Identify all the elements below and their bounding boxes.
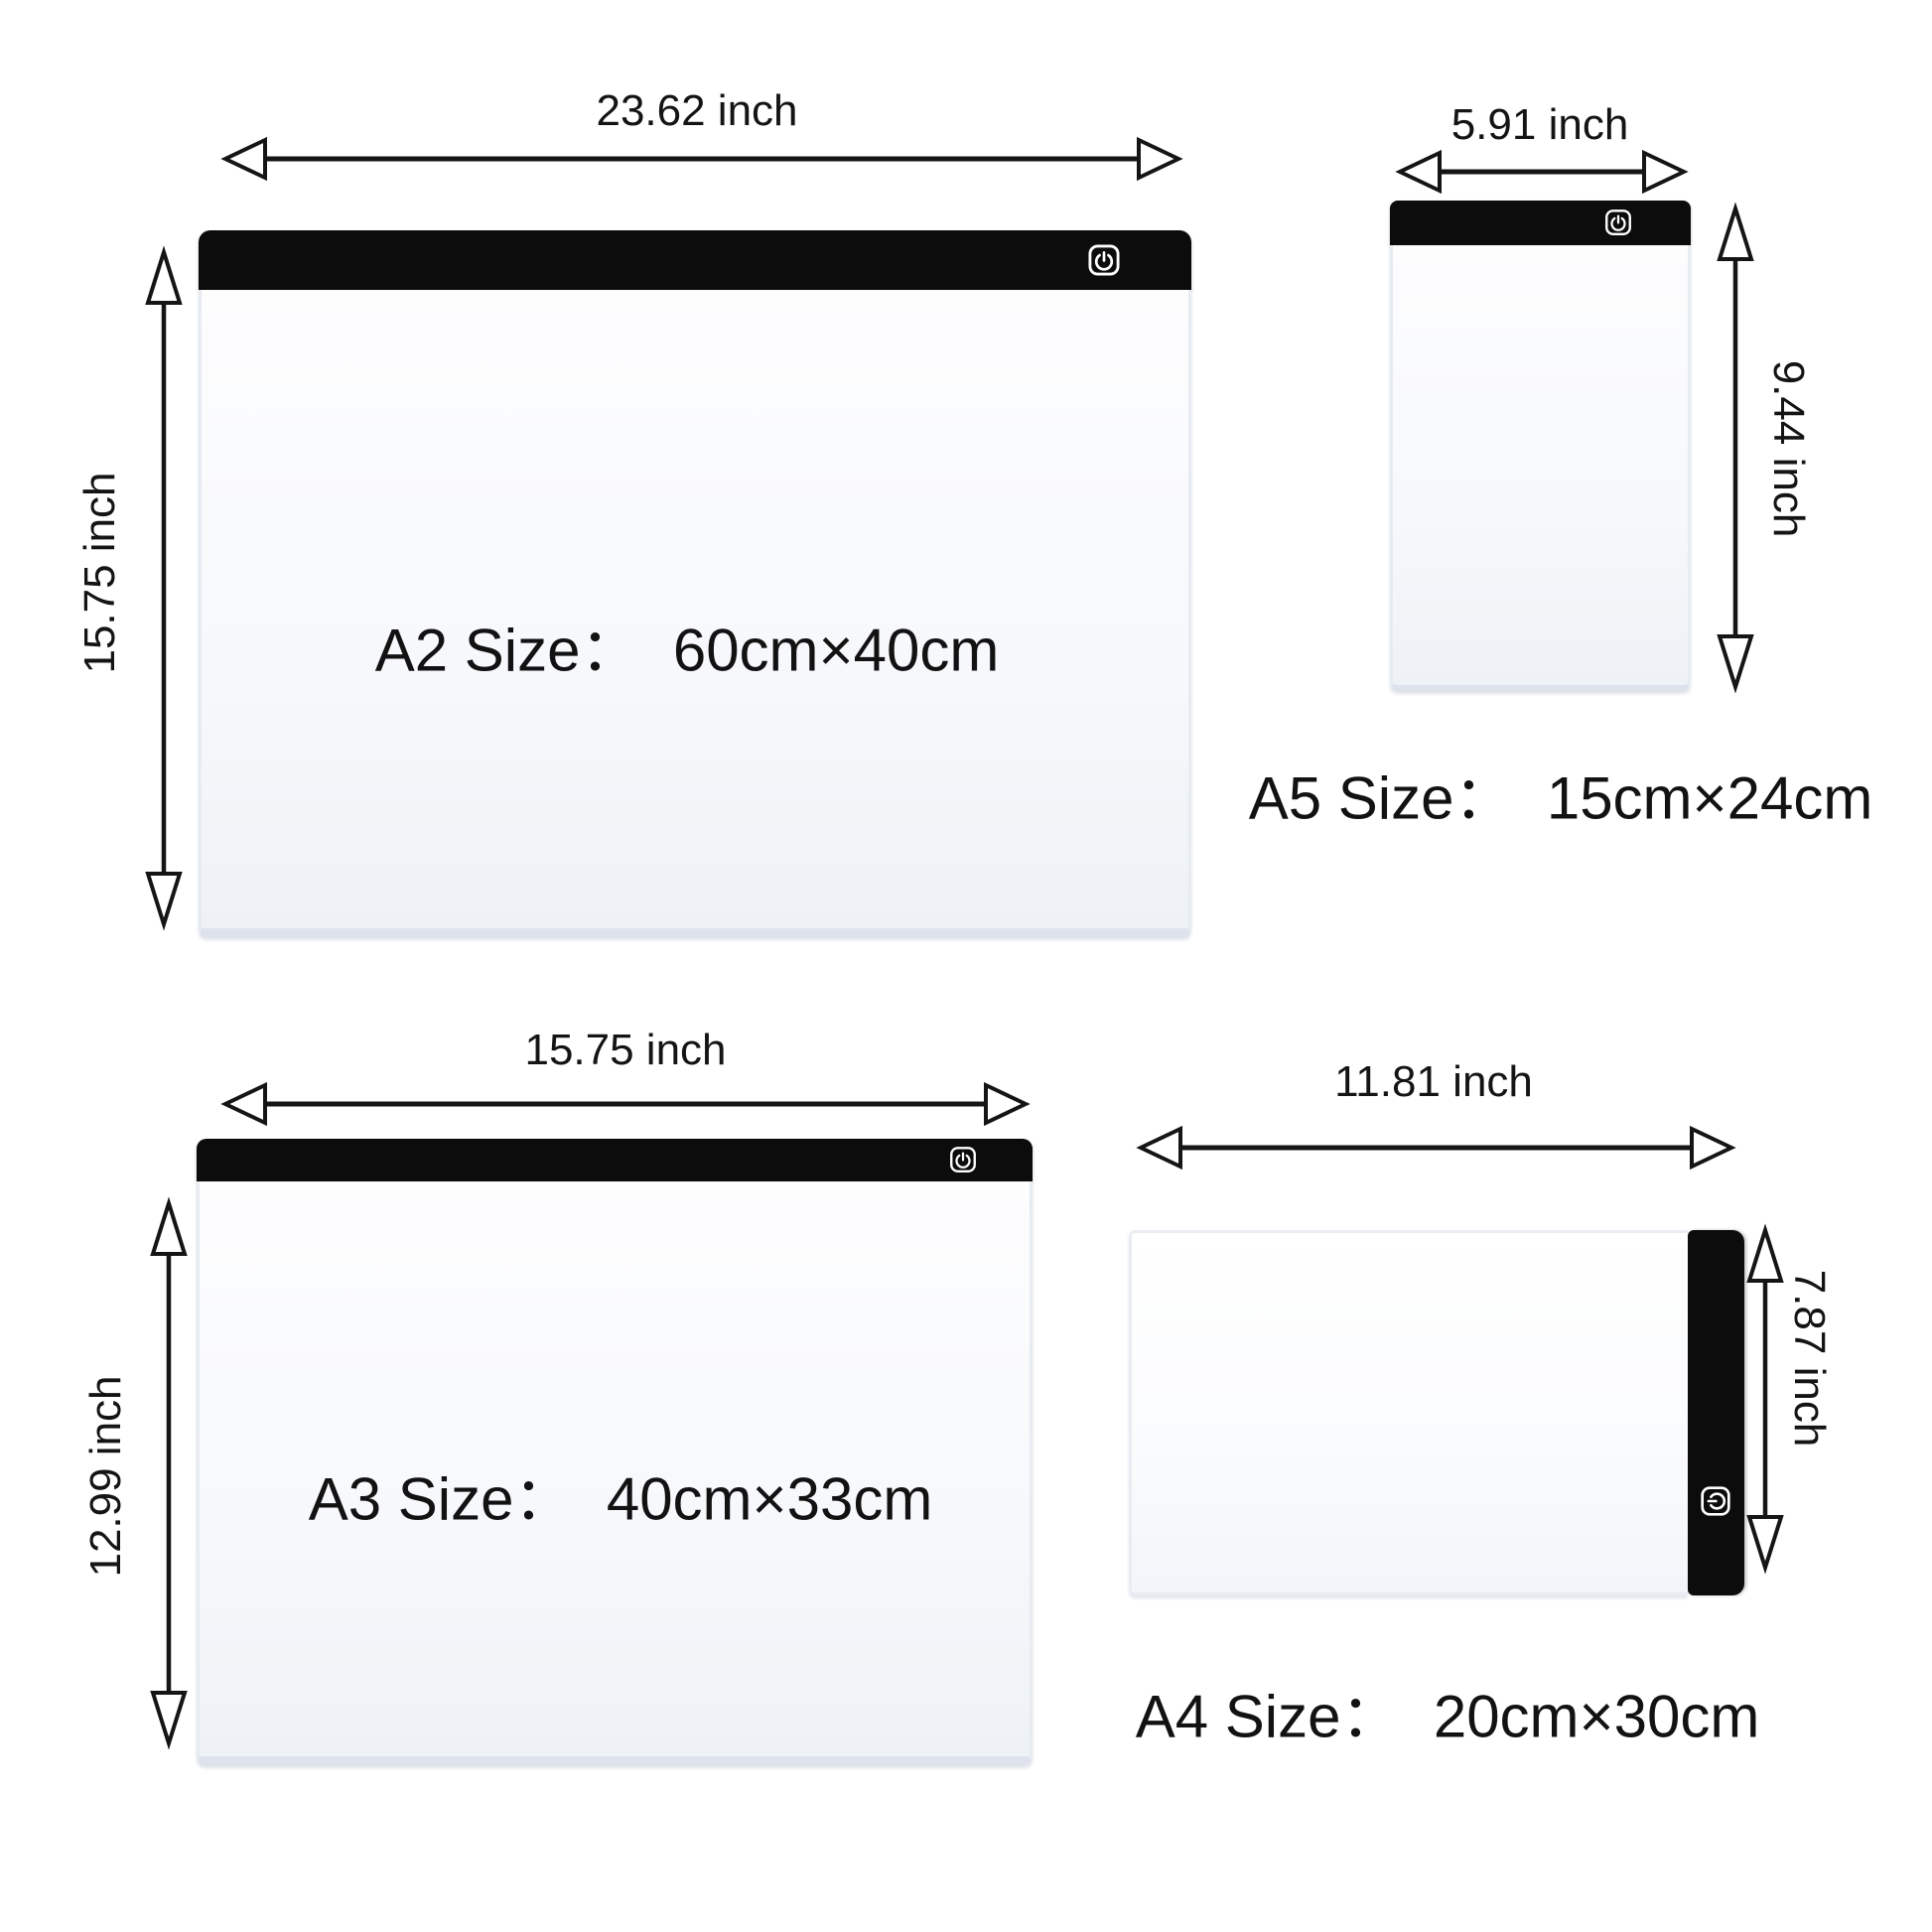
- a4-height-dimension-arrow: [1741, 1226, 1789, 1572]
- a2-width-dimension-label: 23.62 inch: [596, 86, 797, 136]
- a2-top-bar: [199, 230, 1191, 290]
- a3-size-label: A3 Size： 40cm×33cm: [309, 1451, 933, 1538]
- a3-width-dimension-label: 15.75 inch: [524, 1026, 726, 1075]
- power-icon: [1603, 207, 1633, 237]
- a2-height-dimension-arrow: [140, 248, 188, 928]
- power-icon: [948, 1145, 978, 1174]
- a5-light-surface: [1390, 245, 1691, 691]
- power-icon: [1086, 242, 1122, 278]
- a5-height-dimension-label: 9.44 inch: [1763, 360, 1813, 538]
- a5-light-pad: [1390, 201, 1691, 691]
- a4-width-dimension-label: 11.81 inch: [1334, 1057, 1533, 1107]
- a3-height-dimension-arrow: [145, 1199, 193, 1747]
- a5-width-dimension-label: 5.91 inch: [1451, 100, 1629, 150]
- a5-width-dimension-arrow: [1395, 148, 1689, 196]
- a2-height-dimension-label: 15.75 inch: [75, 472, 125, 673]
- a5-size-label: A5 Size： 15cm×24cm: [1249, 751, 1873, 837]
- a5-height-dimension-arrow: [1712, 205, 1759, 691]
- a4-light-surface: [1129, 1230, 1688, 1595]
- a4-side-bar: [1688, 1230, 1744, 1595]
- a4-size-label: A4 Size： 20cm×30cm: [1136, 1669, 1760, 1755]
- product-size-diagram: 23.62 inch 15.75 inch A2 Size： 60cm×40cm…: [0, 0, 1932, 1932]
- a2-light-pad: [199, 230, 1191, 937]
- a4-height-dimension-label: 7.87 inch: [1784, 1270, 1834, 1448]
- a2-size-label: A2 Size： 60cm×40cm: [375, 603, 1000, 689]
- a3-height-dimension-label: 12.99 inch: [81, 1375, 131, 1577]
- a2-width-dimension-arrow: [220, 135, 1183, 183]
- a3-top-bar: [197, 1139, 1033, 1181]
- a4-width-dimension-arrow: [1136, 1124, 1736, 1172]
- a5-top-bar: [1390, 201, 1691, 245]
- power-icon: [1699, 1484, 1732, 1518]
- a4-light-pad: [1129, 1230, 1744, 1595]
- a3-width-dimension-arrow: [220, 1080, 1031, 1128]
